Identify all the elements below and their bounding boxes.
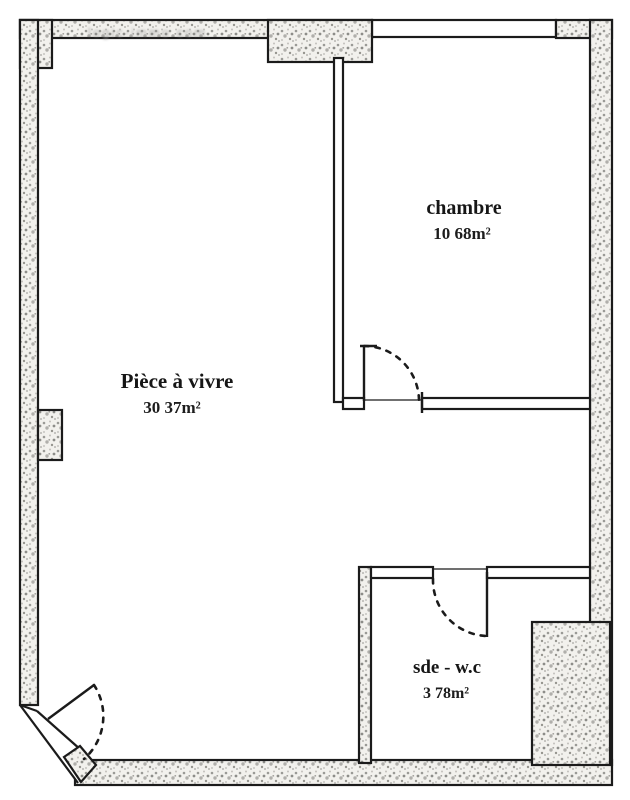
wall-chambre-bottom-left bbox=[343, 398, 364, 409]
wall-left-pilaster bbox=[38, 410, 62, 460]
wall-top-pillar-block bbox=[268, 20, 372, 62]
room-area-sde-wc: 3 78m² bbox=[423, 685, 469, 702]
entrance-chamfer bbox=[20, 705, 96, 783]
wall-sde-top-right bbox=[487, 567, 590, 578]
doors bbox=[48, 346, 487, 759]
interior-walls bbox=[334, 58, 590, 578]
room-label-piece-a-vivre: Pièce à vivre bbox=[121, 369, 234, 393]
room-label-sde-wc: sde - w.c bbox=[413, 657, 481, 678]
wall-left bbox=[20, 20, 38, 705]
wall-living-chambre bbox=[334, 58, 343, 402]
floorplan-canvas: Pièce à vivre 30 37m² chambre 10 68m² sd… bbox=[0, 0, 630, 800]
site-watermark: logic-immo com bbox=[88, 25, 207, 40]
room-area-piece-a-vivre: 30 37m² bbox=[143, 398, 201, 417]
sde-door-swing-arc bbox=[433, 579, 486, 636]
wall-sde-top-left bbox=[371, 567, 433, 578]
wall-sde-left bbox=[359, 567, 371, 763]
floorplan-page: Pièce à vivre 30 37m² chambre 10 68m² sd… bbox=[0, 0, 630, 800]
room-labels: Pièce à vivre 30 37m² chambre 10 68m² sd… bbox=[121, 197, 502, 702]
wall-chambre-bottom-right bbox=[422, 398, 590, 409]
window-top bbox=[372, 20, 556, 37]
room-label-chambre: chambre bbox=[426, 197, 501, 219]
chambre-door-swing-arc bbox=[364, 346, 419, 401]
room-area-chambre: 10 68m² bbox=[433, 224, 491, 243]
entrance-door-swing-arc bbox=[84, 685, 103, 759]
duct-block-bottom-right bbox=[532, 622, 610, 765]
entrance-door-leaf bbox=[48, 685, 94, 719]
